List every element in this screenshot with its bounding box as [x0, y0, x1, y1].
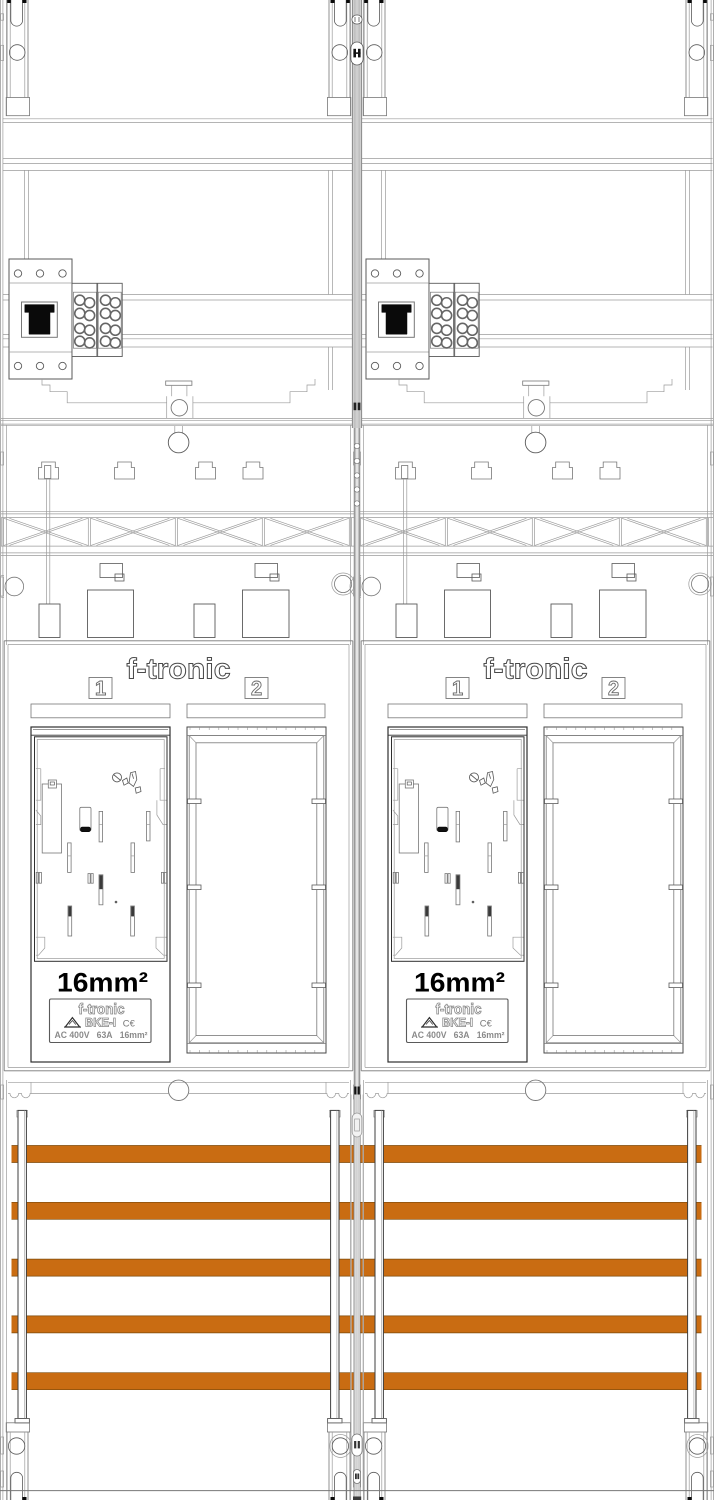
- svg-text:AC 400V 63A 16mm²: AC 400V 63A 16mm²: [412, 1030, 505, 1040]
- svg-text:16mm²: 16mm²: [414, 968, 505, 998]
- svg-text:2: 2: [251, 678, 262, 700]
- svg-text:C€: C€: [480, 1018, 493, 1029]
- svg-text:C€: C€: [123, 1018, 136, 1029]
- svg-text:1: 1: [452, 678, 463, 700]
- svg-text:f-tronic: f-tronic: [127, 654, 231, 686]
- svg-text:BKE-I: BKE-I: [442, 1015, 473, 1029]
- svg-text:1: 1: [95, 678, 106, 700]
- svg-text:16mm²: 16mm²: [57, 968, 148, 998]
- svg-text:BKE-I: BKE-I: [85, 1015, 116, 1029]
- svg-text:f-tronic: f-tronic: [484, 654, 588, 686]
- svg-text:2: 2: [608, 678, 619, 700]
- svg-text:AC 400V 63A 16mm²: AC 400V 63A 16mm²: [55, 1030, 148, 1040]
